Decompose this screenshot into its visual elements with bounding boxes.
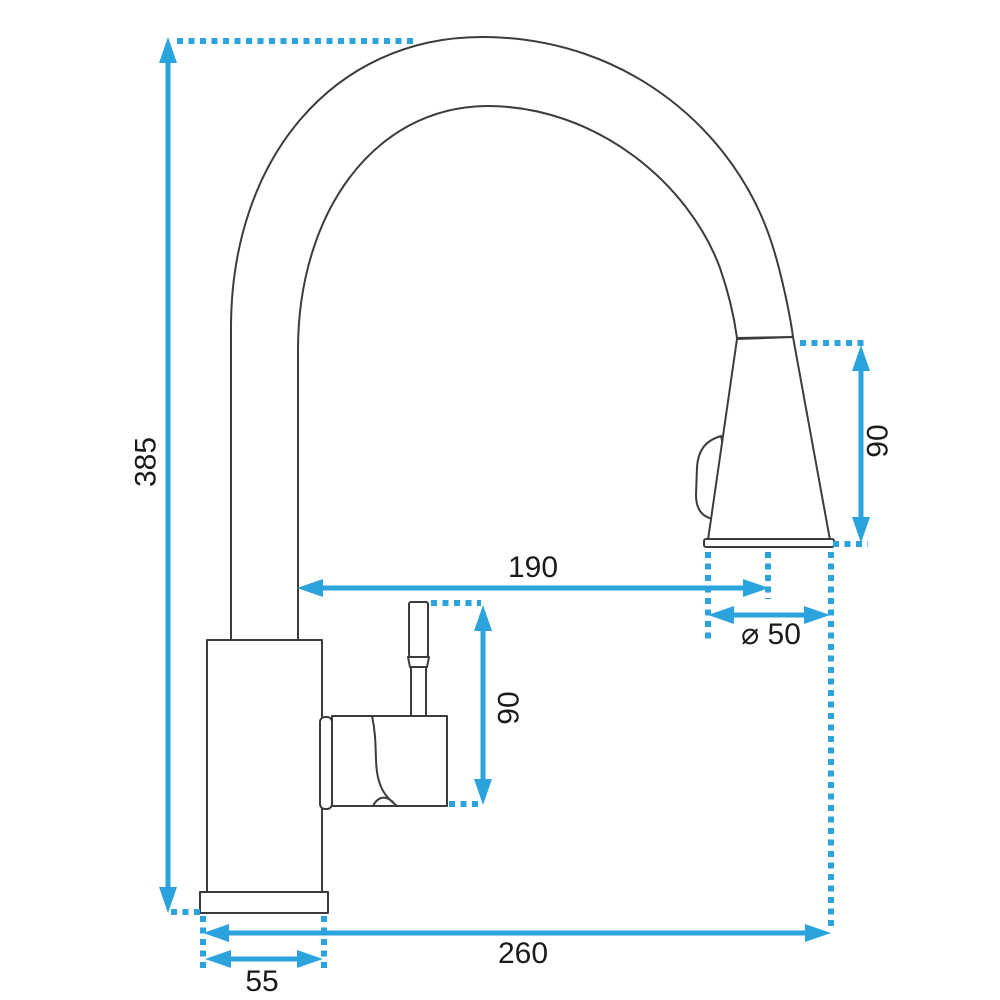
arrow-up-icon <box>159 37 177 63</box>
dim-label-base-width: 55 <box>245 965 278 998</box>
faucet-outline <box>200 37 834 913</box>
arrow-left-icon <box>297 579 323 597</box>
arrow-down-icon <box>852 517 870 543</box>
arrow-left-icon <box>203 924 229 942</box>
dim-label-handle-height: 90 <box>493 691 526 724</box>
spray-head-rim <box>704 539 834 547</box>
handle-lever-stem <box>411 667 426 717</box>
faucet-body <box>207 640 322 892</box>
arrow-left-icon <box>708 606 734 624</box>
dim-label-spout-reach: 190 <box>508 551 558 584</box>
dimension-spout-reach: 190 <box>297 551 769 597</box>
dim-label-base-reach: 260 <box>498 937 548 970</box>
base-flange <box>200 892 328 913</box>
handle-lever-grip <box>409 602 428 657</box>
faucet-dimension-drawing: 385 190 90 90 ⌀ 50 <box>0 0 1000 1000</box>
handle-lever-collar <box>408 657 429 667</box>
dim-label-total-height: 385 <box>130 437 163 487</box>
arrow-right-icon <box>297 950 323 968</box>
drawing-canvas: 385 190 90 90 ⌀ 50 <box>0 0 1000 1000</box>
handle-joint <box>320 717 332 809</box>
arrow-left-icon <box>205 950 231 968</box>
handle-block <box>332 716 447 806</box>
dim-label-spray-head-diameter: ⌀ 50 <box>741 618 801 651</box>
dim-label-spray-head-length: 90 <box>862 424 895 457</box>
arrow-up-icon <box>852 345 870 371</box>
dimension-spray-head-diameter: ⌀ 50 <box>708 552 831 927</box>
spray-head-cone <box>708 337 830 540</box>
arrow-right-icon <box>804 606 830 624</box>
arrow-right-icon <box>805 924 831 942</box>
dimension-base-width: 55 <box>205 950 323 998</box>
arrow-up-icon <box>474 605 492 631</box>
